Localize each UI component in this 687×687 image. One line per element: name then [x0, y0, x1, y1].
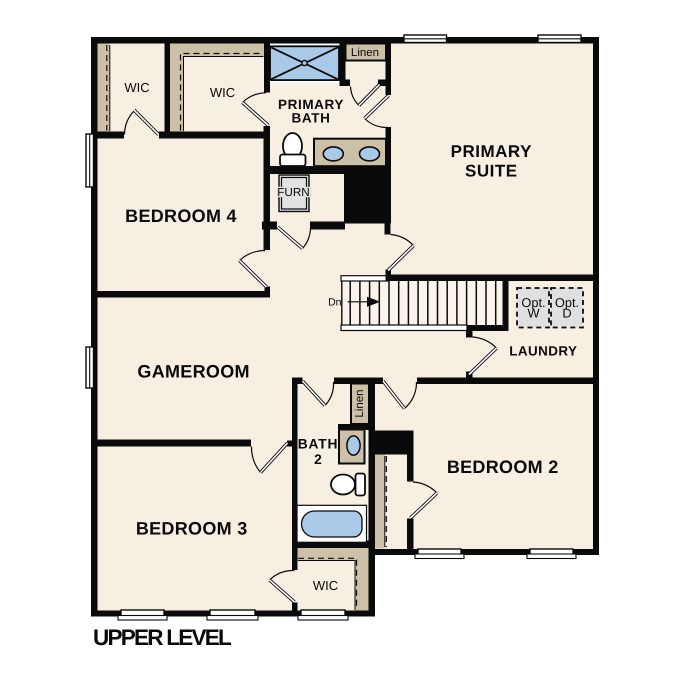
svg-text:W: W — [527, 306, 540, 321]
svg-text:BATH: BATH — [292, 111, 331, 126]
svg-text:GAMEROOM: GAMEROOM — [137, 361, 249, 381]
svg-text:BEDROOM 3: BEDROOM 3 — [136, 519, 248, 539]
svg-text:FURN: FURN — [277, 186, 309, 199]
svg-text:WIC: WIC — [124, 80, 149, 95]
svg-text:UPPER LEVEL: UPPER LEVEL — [93, 625, 232, 650]
svg-text:WIC: WIC — [313, 578, 338, 593]
svg-text:LAUNDRY: LAUNDRY — [509, 344, 577, 359]
svg-text:D: D — [562, 306, 571, 321]
svg-text:2: 2 — [314, 452, 322, 467]
svg-text:Linen: Linen — [351, 47, 379, 59]
svg-text:BEDROOM 4: BEDROOM 4 — [125, 206, 237, 226]
svg-text:SUITE: SUITE — [465, 161, 518, 180]
svg-text:BEDROOM 2: BEDROOM 2 — [447, 457, 559, 477]
svg-text:PRIMARY: PRIMARY — [451, 142, 532, 161]
svg-text:WIC: WIC — [210, 85, 235, 100]
svg-text:BATH: BATH — [298, 437, 339, 452]
svg-text:Dn: Dn — [328, 297, 342, 309]
svg-text:Linen: Linen — [354, 389, 366, 417]
